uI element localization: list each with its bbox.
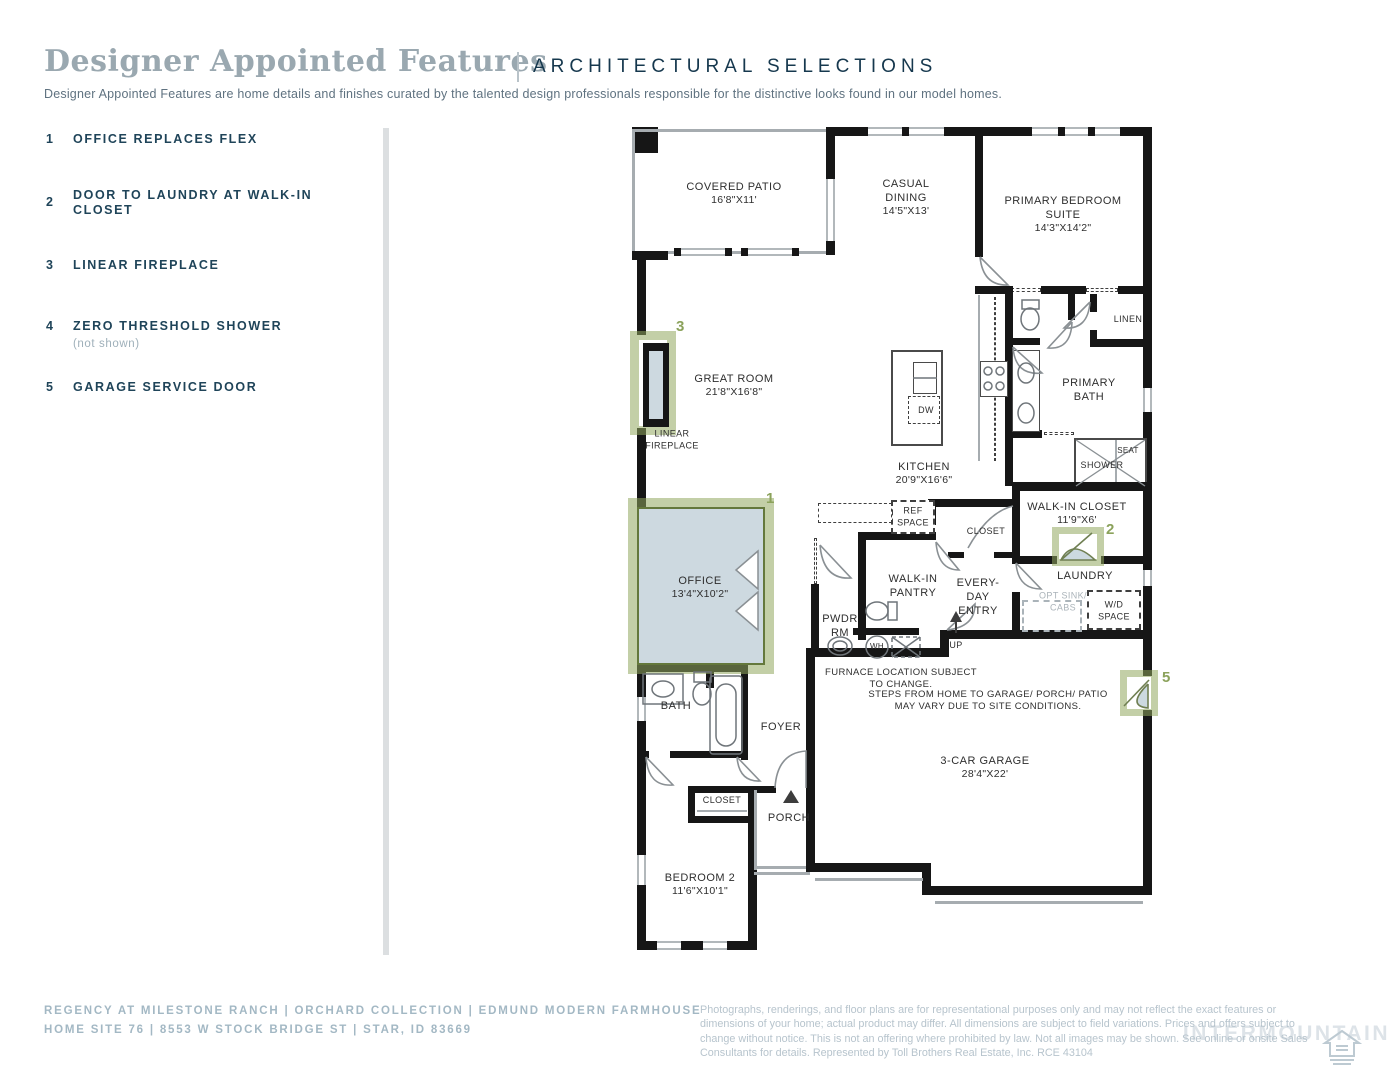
fireplace-glass xyxy=(649,351,663,419)
room-label-office: OFFICE13'4"X10'2" xyxy=(672,574,729,602)
wall xyxy=(670,751,748,758)
feature-number: 1 xyxy=(46,132,66,146)
feature-note: (not shown) xyxy=(73,338,373,351)
room-label-casual-dining: CASUAL DINING14'5"X13' xyxy=(868,177,944,219)
wall xyxy=(928,499,1014,507)
wall xyxy=(922,886,1152,895)
window xyxy=(1143,388,1152,412)
wall xyxy=(806,863,930,872)
room-label-stair-closet: CLOSET xyxy=(967,526,1005,538)
wall xyxy=(975,136,983,257)
wall xyxy=(826,241,835,255)
feature-number: 4 xyxy=(46,319,66,333)
footer-address-line: HOME SITE 76 | 8553 W STOCK BRIDGE ST | … xyxy=(44,1024,472,1036)
window xyxy=(1032,127,1120,136)
cased-opening xyxy=(1044,432,1074,435)
furnace-note: FURNACE LOCATION SUBJECT TO CHANGE. xyxy=(821,667,981,691)
room-label-porch: PORCH xyxy=(768,811,810,825)
feature-number: 5 xyxy=(46,380,66,394)
wall xyxy=(1068,294,1075,320)
feature-number: 2 xyxy=(46,195,66,209)
footer-community-line: REGENCY AT MILESTONE RANCH | ORCHARD COL… xyxy=(44,1005,701,1017)
room-label-bath: BATH xyxy=(661,699,692,713)
patio-outline xyxy=(632,129,635,256)
wall xyxy=(835,127,868,136)
island-sink xyxy=(913,362,937,394)
wall xyxy=(948,552,964,558)
service-door-highlight xyxy=(1120,670,1158,716)
pocket-door xyxy=(1011,288,1041,292)
wall xyxy=(688,786,754,793)
wall xyxy=(1088,127,1095,136)
wall xyxy=(1143,710,1152,895)
wall xyxy=(688,816,754,823)
feature-label: GARAGE SERVICE DOOR xyxy=(73,380,373,395)
wall xyxy=(826,127,835,179)
marker-1: 1 xyxy=(766,490,774,507)
porch-outline xyxy=(754,790,757,870)
marker-3: 3 xyxy=(676,318,684,335)
window xyxy=(748,248,792,256)
wall xyxy=(637,721,646,855)
room-label-hall-closet: CLOSET xyxy=(703,795,741,807)
room-label-garage: 3-CAR GARAGE28'4"X22' xyxy=(940,754,1029,782)
room-label-wd-space: W/D SPACE xyxy=(1091,599,1137,622)
wall xyxy=(1090,339,1152,347)
room-label-laundry: LAUNDRY xyxy=(1057,569,1113,583)
room-label-walk-in-pantry: WALK-IN PANTRY xyxy=(880,572,946,600)
page-description: Designer Appointed Features are home det… xyxy=(44,87,1002,101)
wall xyxy=(741,248,748,256)
wall xyxy=(637,251,646,335)
feature-label: OFFICE REPLACES FLEX xyxy=(73,132,373,147)
page-title: Designer Appointed Features xyxy=(44,44,547,79)
porch-outline xyxy=(754,872,810,875)
wall xyxy=(1012,482,1152,491)
room-label-covered-patio: COVERED PATIO16'8"X11' xyxy=(684,180,784,208)
porch-outline xyxy=(754,866,810,869)
room-label-opt-sink: OPT SINK/ CABS xyxy=(1032,590,1094,613)
window xyxy=(703,941,727,950)
page-subtitle: ARCHITECTURAL SELECTIONS xyxy=(533,56,937,78)
cabinet-dashed xyxy=(814,538,817,584)
wall xyxy=(1012,592,1020,630)
wall xyxy=(637,941,657,950)
wall xyxy=(637,751,649,758)
wall xyxy=(1101,556,1143,564)
room-label-linear-fireplace: LINEAR FIREPLACE xyxy=(633,428,711,451)
wall xyxy=(1005,438,1013,486)
wall xyxy=(725,248,732,256)
room-label-foyer: FOYER xyxy=(761,720,801,734)
marker-2: 2 xyxy=(1106,521,1114,538)
closet-shelf xyxy=(697,810,747,812)
feature-label: LINEAR FIREPLACE xyxy=(73,258,373,273)
wall xyxy=(806,648,815,872)
wall xyxy=(674,248,681,256)
laundry-door-highlight xyxy=(1052,527,1104,566)
room-label-great-room: GREAT ROOM21'8"X16'8" xyxy=(694,372,773,400)
footer-disclaimer: Photographs, renderings, and floor plans… xyxy=(700,1003,1314,1060)
room-label-seat: SEAT xyxy=(1117,446,1139,456)
room-label-kitchen: KITCHEN20'9"X16'6" xyxy=(896,460,953,488)
wall xyxy=(1118,286,1152,294)
title-divider xyxy=(517,52,519,82)
room-label-bedroom2: BEDROOM 211'6"X10'1" xyxy=(665,871,736,899)
room-label-primary-suite: PRIMARY BEDROOM SUITE14'3"X14'2" xyxy=(993,194,1133,236)
bath-vanity xyxy=(1012,350,1040,432)
pocket-door xyxy=(1086,288,1118,292)
vertical-divider xyxy=(383,128,389,955)
wall xyxy=(688,786,695,823)
wall xyxy=(1143,586,1152,676)
room-label-dw: DW xyxy=(918,405,934,417)
steps-note: STEPS FROM HOME TO GARAGE/ PORCH/ PATIO … xyxy=(863,689,1113,713)
patio-outline xyxy=(632,129,834,132)
room-label-wh: WH xyxy=(870,642,884,652)
garage-door-line xyxy=(815,878,923,881)
room-label-ref-space: REF SPACE xyxy=(891,505,935,528)
window xyxy=(637,697,646,721)
room-label-linen: LINEN xyxy=(1114,314,1143,326)
room-label-up: UP xyxy=(949,640,962,652)
feature-label: DOOR TO LAUNDRY AT WALK-IN CLOSET xyxy=(73,188,323,217)
wall xyxy=(902,127,909,136)
room-label-pwdr: PWDR RM xyxy=(816,612,864,640)
room-label-primary-bath: PRIMARY BATH xyxy=(1049,376,1129,404)
window xyxy=(1143,570,1152,586)
counter-dashed xyxy=(818,503,892,523)
wall xyxy=(1012,484,1020,560)
window xyxy=(826,179,835,241)
wall xyxy=(1090,294,1097,312)
feature-label: ZERO THRESHOLD SHOWER (not shown) xyxy=(73,319,373,351)
room-label-shower: SHOWER xyxy=(1081,460,1124,472)
page: Designer Appointed Features ARCHITECTURA… xyxy=(0,0,1398,1080)
cooktop xyxy=(980,361,1008,397)
wall xyxy=(1058,127,1065,136)
window xyxy=(657,941,681,950)
garage-door-line xyxy=(935,901,1143,904)
wall xyxy=(741,664,748,760)
wall xyxy=(1143,127,1152,388)
wall xyxy=(1041,286,1086,294)
wall xyxy=(792,248,799,256)
wall xyxy=(944,127,1032,136)
feature-number: 3 xyxy=(46,258,66,272)
window xyxy=(637,855,646,885)
wall xyxy=(994,552,1014,558)
wall xyxy=(681,941,703,950)
room-label-everyday-entry: EVERY-DAY ENTRY xyxy=(951,576,1005,618)
marker-5: 5 xyxy=(1162,669,1170,686)
wall xyxy=(1143,412,1152,570)
wall xyxy=(748,786,776,793)
window xyxy=(681,248,725,256)
wall xyxy=(1012,338,1040,345)
